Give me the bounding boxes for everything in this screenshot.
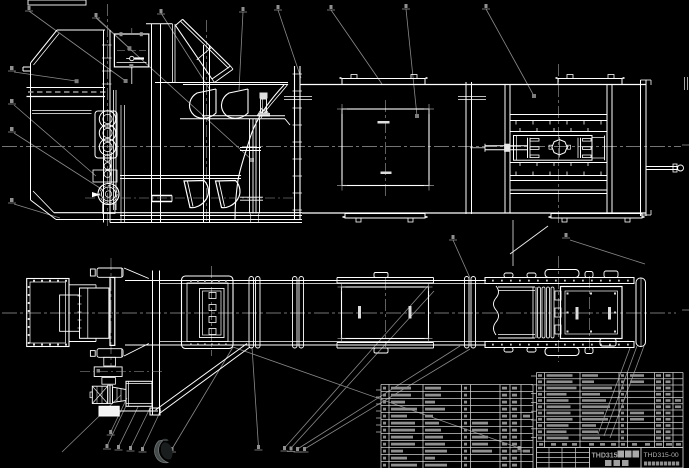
svg-text:THD315-00: THD315-00 xyxy=(644,452,679,459)
svg-text:THD315: THD315 xyxy=(592,453,618,460)
